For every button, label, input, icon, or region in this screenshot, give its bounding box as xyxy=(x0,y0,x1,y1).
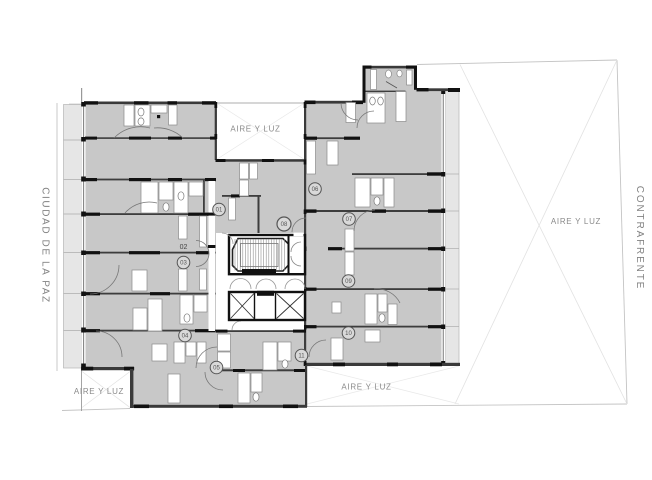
svg-text:06: 06 xyxy=(312,187,319,193)
svg-text:04: 04 xyxy=(182,334,189,340)
svg-text:CONTRAFRENTE: CONTRAFRENTE xyxy=(634,186,645,290)
svg-text:08: 08 xyxy=(281,222,288,228)
svg-text:09: 09 xyxy=(345,279,352,285)
svg-text:10: 10 xyxy=(345,331,352,337)
svg-text:AIRE Y LUZ: AIRE Y LUZ xyxy=(230,125,280,134)
svg-text:AIRE Y LUZ: AIRE Y LUZ xyxy=(551,217,601,226)
svg-text:11: 11 xyxy=(298,354,305,360)
svg-text:02: 02 xyxy=(180,244,188,251)
svg-text:03: 03 xyxy=(180,261,187,267)
svg-text:AIRE Y LUZ: AIRE Y LUZ xyxy=(74,387,124,396)
svg-text:AIRE Y LUZ: AIRE Y LUZ xyxy=(341,383,391,392)
svg-text:01: 01 xyxy=(216,208,223,214)
svg-text:05: 05 xyxy=(213,366,220,372)
svg-text:CIUDAD DE LA PAZ: CIUDAD DE LA PAZ xyxy=(40,187,51,304)
svg-text:07: 07 xyxy=(346,217,353,223)
